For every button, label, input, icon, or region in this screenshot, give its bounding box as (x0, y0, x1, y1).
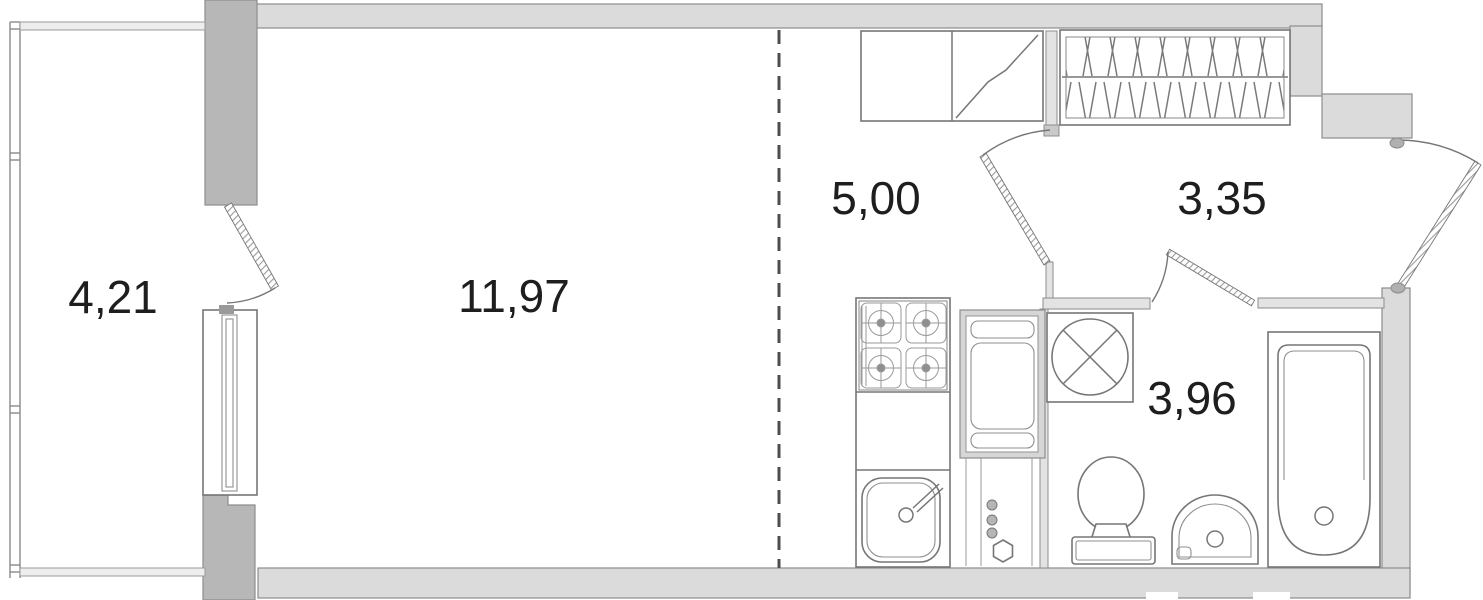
pipe-riser-icon (987, 500, 1013, 562)
washing-machine-icon (1047, 313, 1133, 402)
bathtub-icon (1268, 332, 1380, 567)
floor-plan: 4,21 11,97 5,00 3,35 3,96 (0, 0, 1483, 600)
entrance-door-hinge (1390, 138, 1404, 148)
kitchen-area-label: 5,00 (831, 172, 921, 224)
bathroom-wall-left (1043, 298, 1150, 309)
balcony-area-label: 4,21 (68, 271, 158, 323)
ventilation-shaft-icon (960, 310, 1045, 566)
entrance-door-pivot (1391, 283, 1405, 293)
toilet-icon (1072, 457, 1155, 564)
living-room-area-label: 11,97 (458, 270, 570, 322)
window-hinge (219, 305, 234, 314)
entrance-niche-wall-vertical (1290, 26, 1322, 96)
floor-plan-drawing: 4,21 11,97 5,00 3,35 3,96 (0, 0, 1483, 600)
kitchen-sink-icon (862, 478, 943, 562)
hall-wall-segment (1046, 262, 1053, 302)
bathroom-wall-right (1258, 298, 1384, 308)
wardrobe-icon (1060, 30, 1290, 125)
balcony-door (225, 203, 279, 303)
bathroom-door (1152, 249, 1255, 306)
hall-door-jamb (1046, 31, 1057, 126)
entrance-niche-wall-horizontal (1322, 94, 1412, 138)
entrance-door (1390, 138, 1481, 293)
interior-door (980, 130, 1050, 265)
right-wall (1382, 288, 1410, 593)
bottom-wall-notch (1253, 592, 1290, 600)
kitchen-cabinets (861, 31, 1043, 121)
bottom-wall (258, 568, 1410, 598)
top-wall (237, 4, 1322, 28)
balcony-glazing (10, 22, 20, 578)
hallway-area-label: 3,35 (1177, 172, 1267, 224)
bottom-wall-notch (1146, 592, 1178, 600)
bathroom-area-label: 3,96 (1147, 372, 1237, 424)
washbasin-icon (1172, 495, 1258, 564)
kitchen-counter (856, 298, 950, 567)
balcony-top-edge (20, 22, 205, 30)
balcony-pillar (205, 0, 257, 205)
window (203, 305, 257, 495)
window-wall-segment (203, 495, 255, 600)
balcony-bottom-edge (20, 568, 205, 576)
